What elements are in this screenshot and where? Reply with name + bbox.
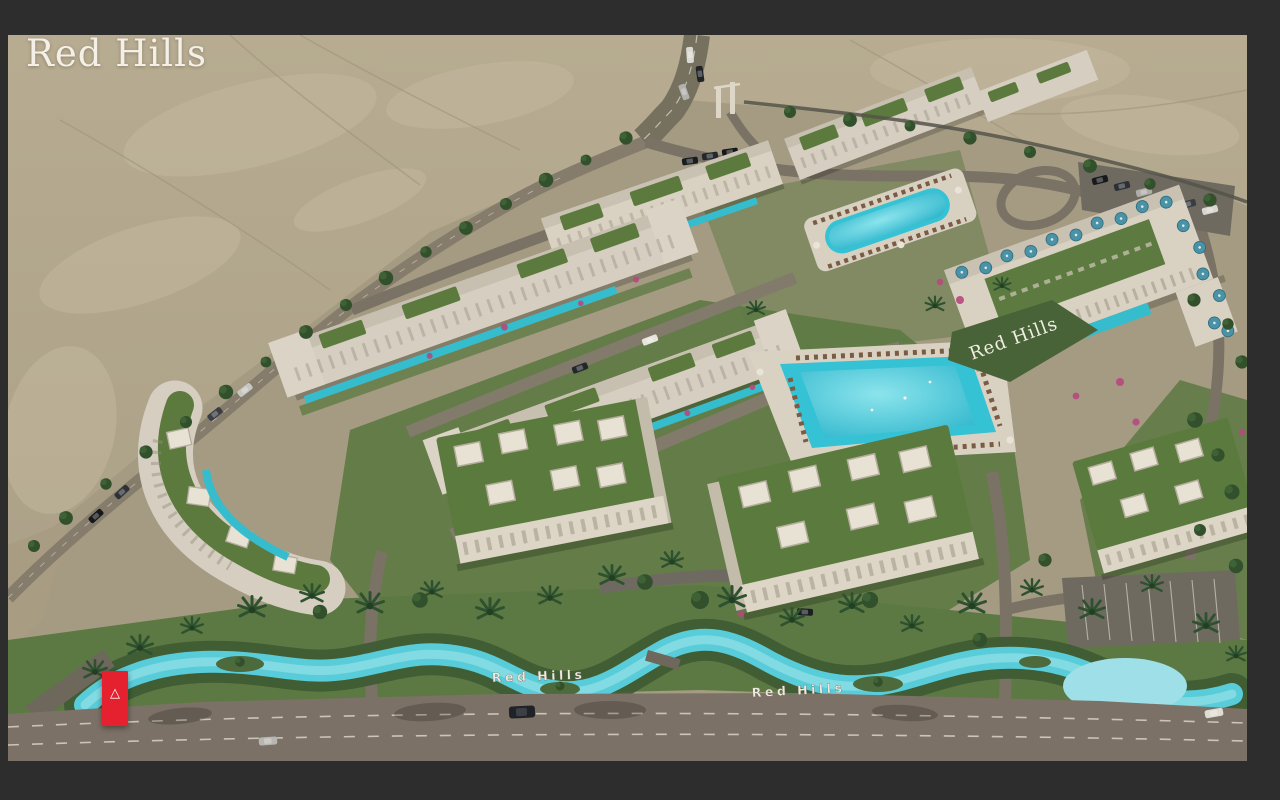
masterplan-scene: Red Hills bbox=[8, 35, 1247, 761]
triangle-up-icon: △ bbox=[110, 687, 120, 700]
brand-logo: Red Hills bbox=[26, 32, 207, 75]
aerial-render: Red Hills bbox=[8, 35, 1247, 761]
suv-car bbox=[509, 705, 536, 718]
main-road bbox=[8, 693, 1247, 761]
location-marker-button[interactable]: △ bbox=[102, 671, 128, 726]
